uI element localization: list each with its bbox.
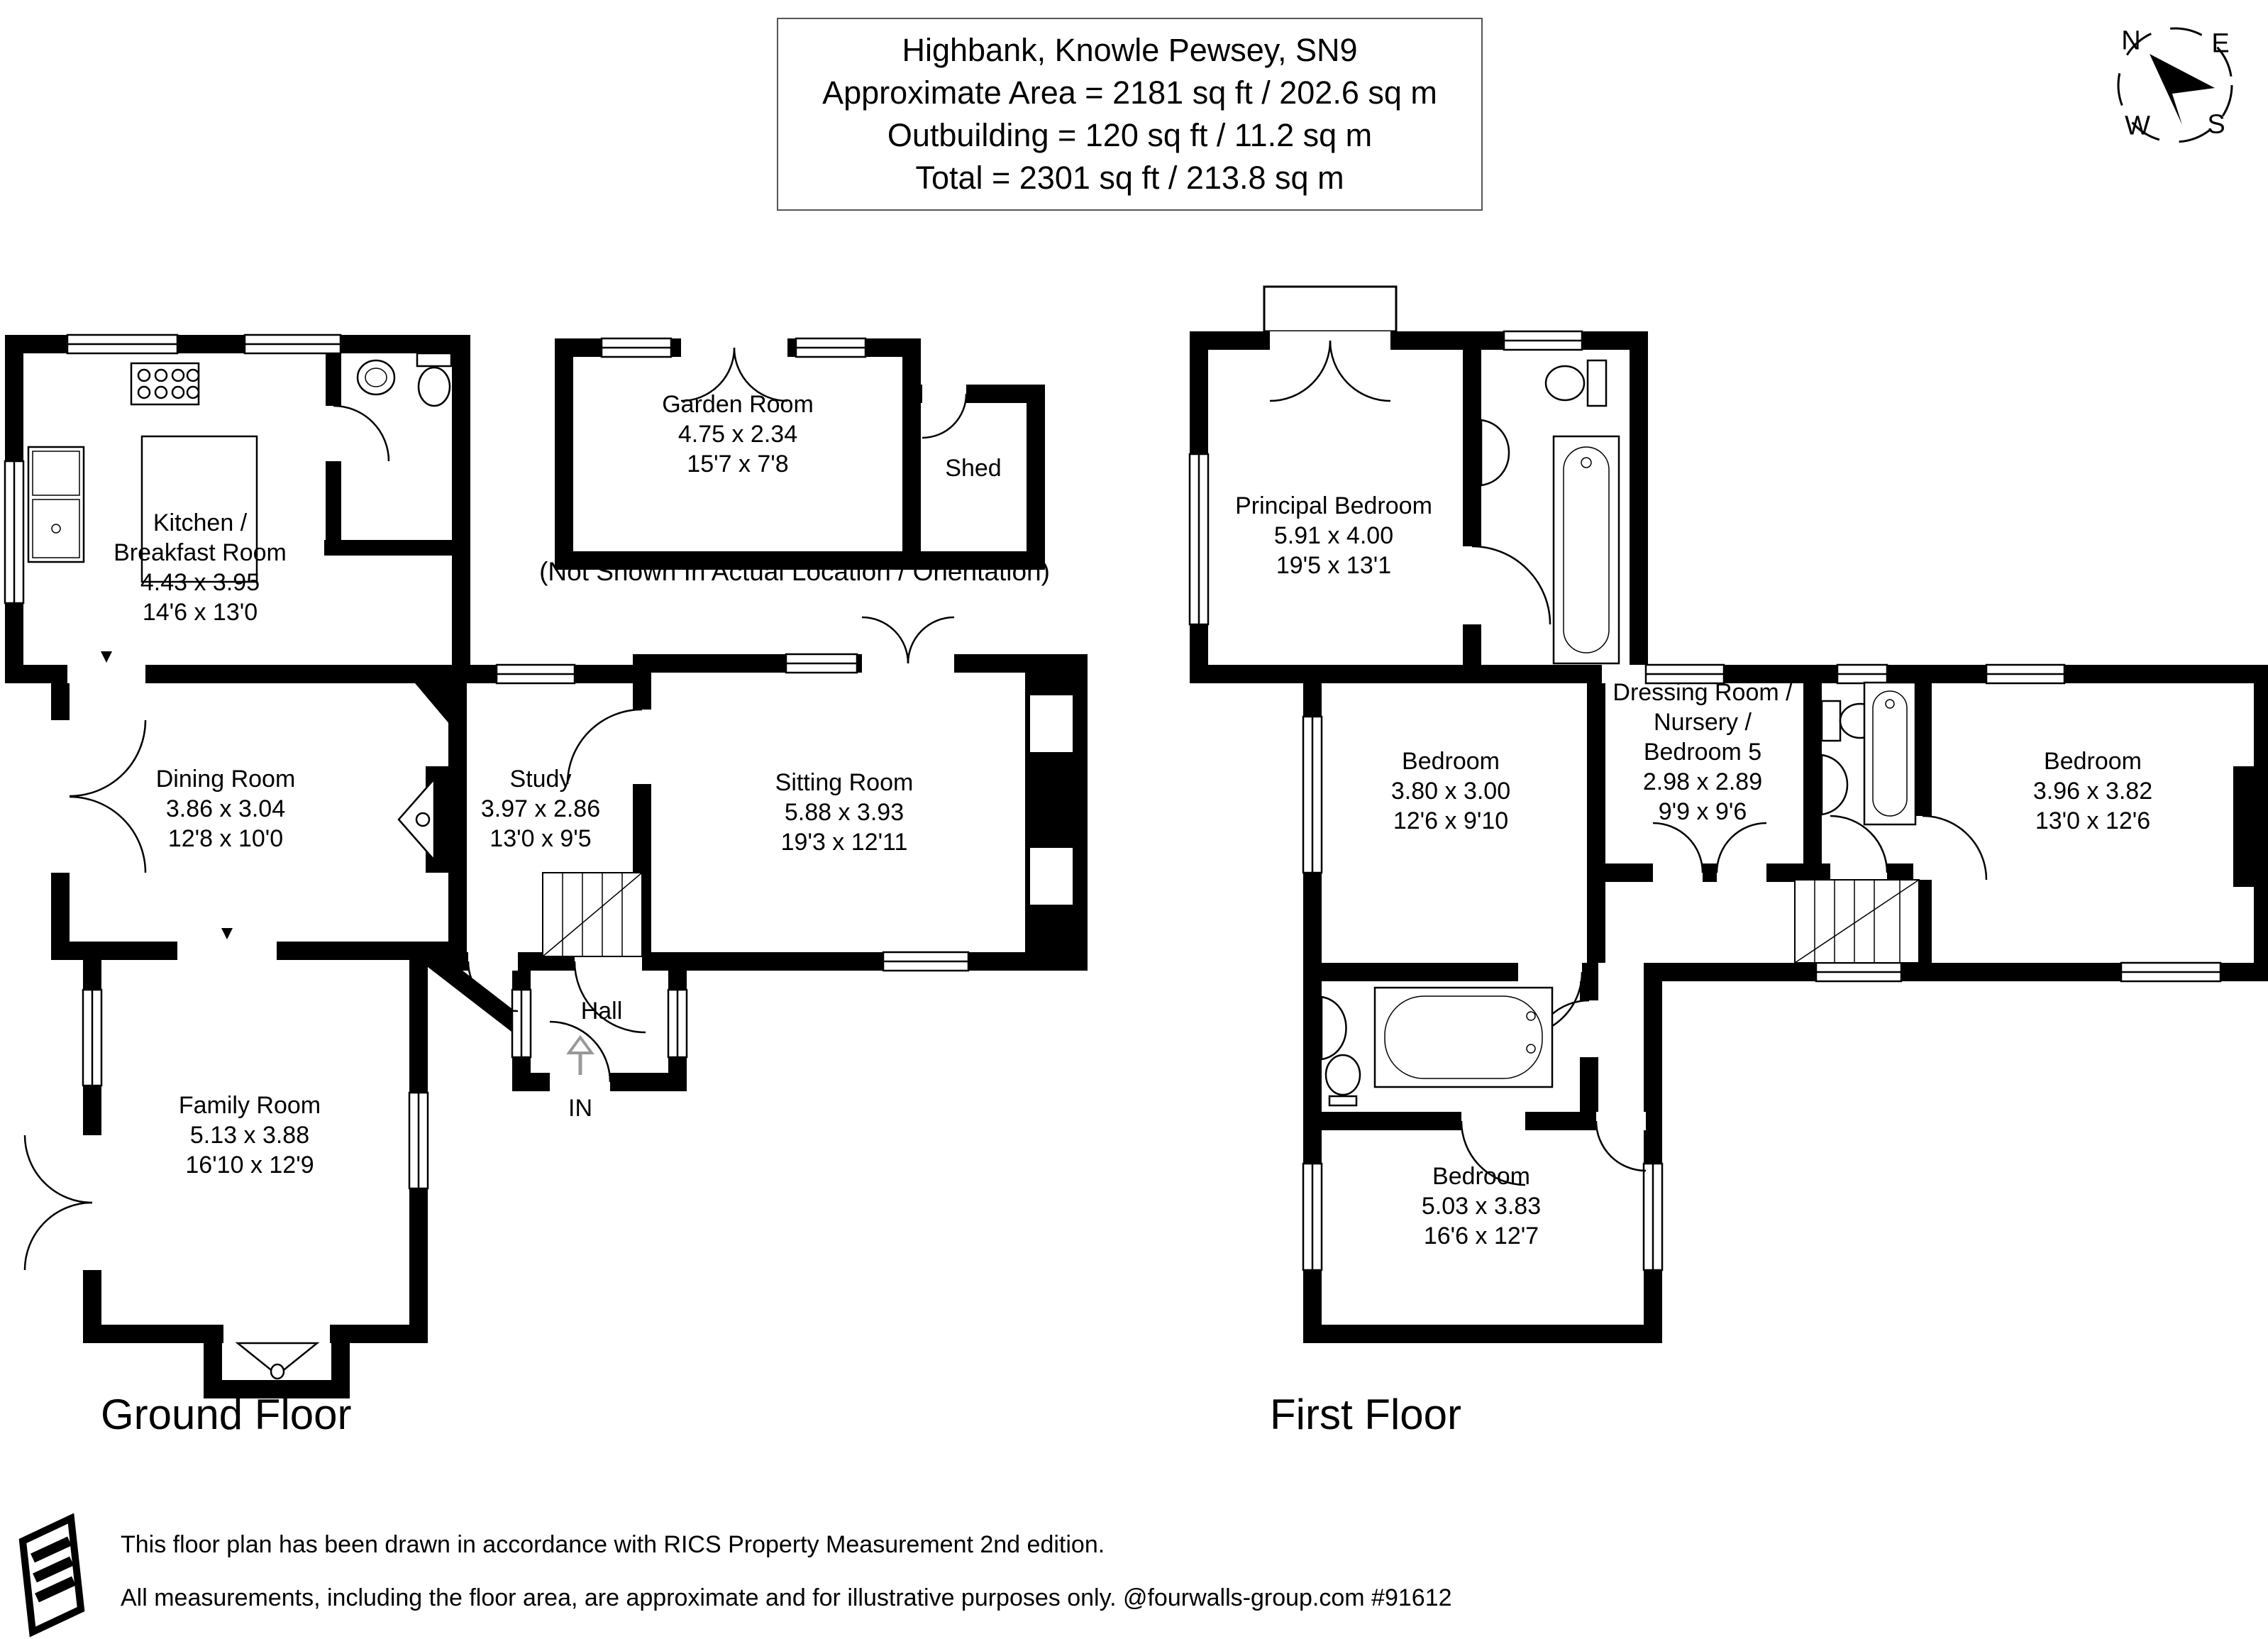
- ground-floor-label: Ground Floor: [101, 1392, 352, 1437]
- room-label-dining-room: Dining Room 3.86 x 3.04 12'8 x 10'0: [156, 764, 296, 854]
- total-area: Total = 2301 sq ft / 213.8 sq m: [778, 157, 1481, 199]
- footer-disclaimer-line1: This floor plan has been drawn in accord…: [121, 1531, 1105, 1559]
- first-floor-solid-walls: [2233, 766, 2263, 887]
- room-label-shed: Shed: [945, 453, 1001, 483]
- room-label-bedroom-4: Bedroom 3.96 x 3.82 13'0 x 12'6: [2033, 746, 2152, 836]
- first-stairs: [1795, 880, 1919, 963]
- entrance-label: IN: [568, 1093, 592, 1123]
- room-label-dressing-room: Dressing Room / Nursery / Bedroom 5 2.98…: [1613, 678, 1792, 827]
- footer-disclaimer-line2: All measurements, including the floor ar…: [121, 1584, 1452, 1612]
- wc-toilet-icon: [417, 353, 451, 406]
- room-label-bedroom-3: Bedroom 5.03 x 3.83 16'6 x 12'7: [1422, 1161, 1541, 1251]
- room-label-hall: Hall: [581, 996, 623, 1026]
- outbuilding-area: Outbuilding = 120 sq ft / 11.2 sq m: [778, 114, 1481, 157]
- compass-north-label: N: [2121, 26, 2140, 57]
- hob-icon: [131, 363, 199, 404]
- room-label-family-room: Family Room 5.13 x 3.88 16'10 x 12'9: [179, 1091, 321, 1180]
- room-label-garden-room: Garden Room 4.75 x 2.34 15'7 x 7'8: [662, 390, 814, 479]
- room-label-principal-bedroom: Principal Bedroom 5.91 x 4.00 19'5 x 13'…: [1235, 491, 1432, 580]
- fourwalls-logo: [23, 1518, 81, 1632]
- compass-south-label: S: [2207, 110, 2225, 140]
- compass-west-label: W: [2125, 111, 2150, 142]
- wc-sink-icon: [358, 360, 394, 394]
- room-label-study: Study 3.97 x 2.86 13'0 x 9'5: [481, 764, 600, 854]
- room-label-sitting-room: Sitting Room 5.88 x 3.93 19'3 x 12'11: [775, 768, 914, 857]
- approximate-area: Approximate Area = 2181 sq ft / 202.6 sq…: [778, 72, 1481, 114]
- compass-east-label: E: [2211, 29, 2229, 60]
- ensuite-bath-icon: [1554, 436, 1619, 663]
- ground-stairs: [543, 873, 642, 956]
- first-floor-label: First Floor: [1270, 1392, 1461, 1437]
- room-label-kitchen: Kitchen / Breakfast Room 4.43 x 3.95 14'…: [114, 508, 287, 627]
- outbuilding-note: (Not Shown In Actual Location / Orientat…: [539, 557, 1050, 587]
- bathroom3-toilet-icon: [1326, 1055, 1360, 1105]
- floorplan-page: Highbank, Knowle Pewsey, SN9 Approximate…: [0, 0, 2268, 1639]
- bathroom3-bath-icon: [1375, 988, 1552, 1087]
- property-address: Highbank, Knowle Pewsey, SN9: [778, 29, 1481, 72]
- room-label-bedroom-2: Bedroom 3.80 x 3.00 12'6 x 9'10: [1391, 746, 1510, 836]
- title-box: Highbank, Knowle Pewsey, SN9 Approximate…: [777, 18, 1483, 211]
- bathroom2-bath-icon: [1864, 683, 1915, 824]
- kitchen-sink-icon: [28, 447, 84, 562]
